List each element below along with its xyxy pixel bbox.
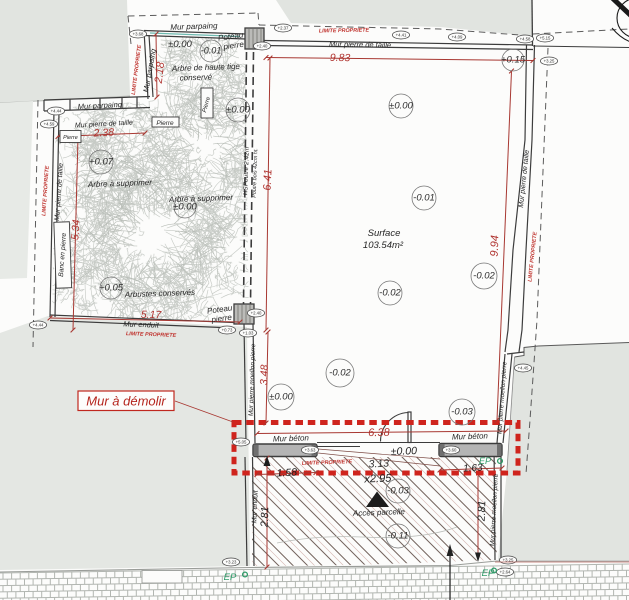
svg-text:-0.03: -0.03 [451,407,473,418]
svg-text:+0.07: +0.07 [89,157,114,168]
svg-text:-0.01: -0.01 [201,46,222,56]
svg-text:Mur béton: Mur béton [452,431,489,441]
svg-text:x2.95: x2.95 [363,473,392,486]
svg-text:+3.60: +3.60 [446,448,457,453]
svg-text:±0.00: ±0.00 [168,39,192,50]
svg-text:9.94: 9.94 [489,235,502,257]
svg-text:+4.58: +4.58 [520,37,531,42]
svg-text:Pierre: Pierre [63,135,78,141]
svg-text:EP: EP [479,456,491,466]
svg-text:2.81: 2.81 [476,500,489,522]
svg-text:+1.03: +1.03 [243,331,254,336]
svg-text:+3.25: +3.25 [544,59,555,64]
svg-text:Accès parcelle: Accès parcelle [352,507,406,518]
svg-text:+4.09: +4.09 [452,35,463,40]
svg-text:±0.00: ±0.00 [389,101,413,112]
svg-text:+4.41: +4.41 [396,33,407,38]
svg-text:-0.03: -0.03 [387,486,409,497]
svg-text:+3.68: +3.68 [133,32,144,37]
svg-text:+0.15: +0.15 [501,55,526,66]
svg-text:+4.59: +4.59 [44,122,55,127]
svg-text:+4.44: +4.44 [33,323,44,328]
svg-text:Mur pierre de taille: Mur pierre de taille [329,39,391,49]
svg-text:+2.40: +2.40 [251,311,262,316]
svg-text:2.81: 2.81 [259,506,272,528]
svg-text:LIMITE PROPRIETE: LIMITE PROPRIETE [319,28,370,35]
svg-text:+2.37: +2.37 [278,26,289,31]
svg-text:±0.00: ±0.00 [173,202,197,213]
svg-text:+0.73: +0.73 [222,328,233,333]
svg-text:EP: EP [224,572,237,583]
svg-text:Pierre: Pierre [156,120,174,127]
svg-text:+3.63: +3.63 [305,448,316,453]
svg-text:3.48: 3.48 [258,364,271,385]
svg-text:-0.01: -0.01 [413,193,435,204]
svg-text:+0.05: +0.05 [99,283,124,294]
svg-text:+4.44: +4.44 [51,109,62,114]
svg-text:±0.00: ±0.00 [391,445,418,458]
svg-text:±0.00: ±0.00 [226,105,250,116]
svg-text:103.54m²: 103.54m² [363,240,404,251]
svg-text:Mur béton: Mur béton [273,433,310,443]
svg-text:+4.45: +4.45 [518,366,529,371]
svg-text:+5.05: +5.05 [236,440,247,445]
svg-text:5.34: 5.34 [69,219,82,240]
svg-text:-0.02: -0.02 [473,271,495,282]
svg-text:3.13: 3.13 [368,457,389,470]
svg-text:Mur à démolir: Mur à démolir [86,394,166,409]
svg-text:Surface: Surface [368,228,401,239]
svg-text:-0.02: -0.02 [379,288,401,299]
svg-text:9.83: 9.83 [330,52,351,64]
svg-text:Mur parpaing: Mur parpaing [170,21,218,32]
svg-text:-0.02: -0.02 [329,368,351,379]
svg-text:Mur enduit: Mur enduit [123,319,160,329]
svg-text:+5.15: +5.15 [540,36,551,41]
svg-text:+2.40: +2.40 [257,44,268,49]
svg-text:+2.64: +2.64 [500,570,511,575]
svg-text:-0.11: -0.11 [388,531,409,542]
svg-text:6.41: 6.41 [261,169,274,191]
svg-text:6.38: 6.38 [368,427,390,439]
svg-text:conservé: conservé [180,72,213,82]
svg-text:+3.23: +3.23 [226,560,237,565]
svg-text:EP: EP [482,568,495,579]
svg-text:2.38: 2.38 [92,126,114,139]
svg-text:±0.00: ±0.00 [269,392,293,403]
svg-text:1.58: 1.58 [276,466,297,479]
